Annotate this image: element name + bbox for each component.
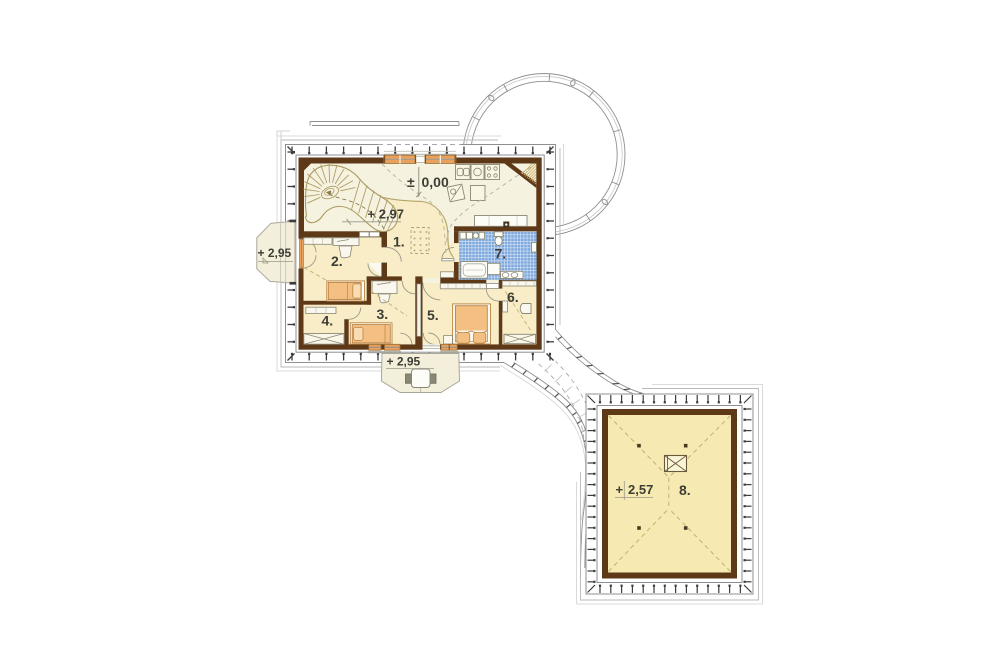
svg-text:+ 2,97: + 2,97: [368, 207, 405, 222]
svg-text:+ 2,95: + 2,95: [387, 355, 421, 369]
svg-text:1.: 1.: [393, 234, 405, 250]
svg-text:2.: 2.: [331, 253, 343, 269]
svg-text:5.: 5.: [427, 307, 439, 323]
svg-text:6.: 6.: [507, 289, 519, 305]
svg-text:0,00: 0,00: [422, 174, 449, 190]
svg-text:7.: 7.: [495, 246, 507, 262]
svg-text:+: +: [616, 482, 624, 497]
svg-text:±: ±: [407, 174, 415, 190]
svg-text:3.: 3.: [377, 306, 389, 322]
svg-text:4.: 4.: [322, 313, 334, 329]
svg-text:8.: 8.: [679, 482, 691, 498]
svg-text:2,57: 2,57: [628, 482, 653, 497]
